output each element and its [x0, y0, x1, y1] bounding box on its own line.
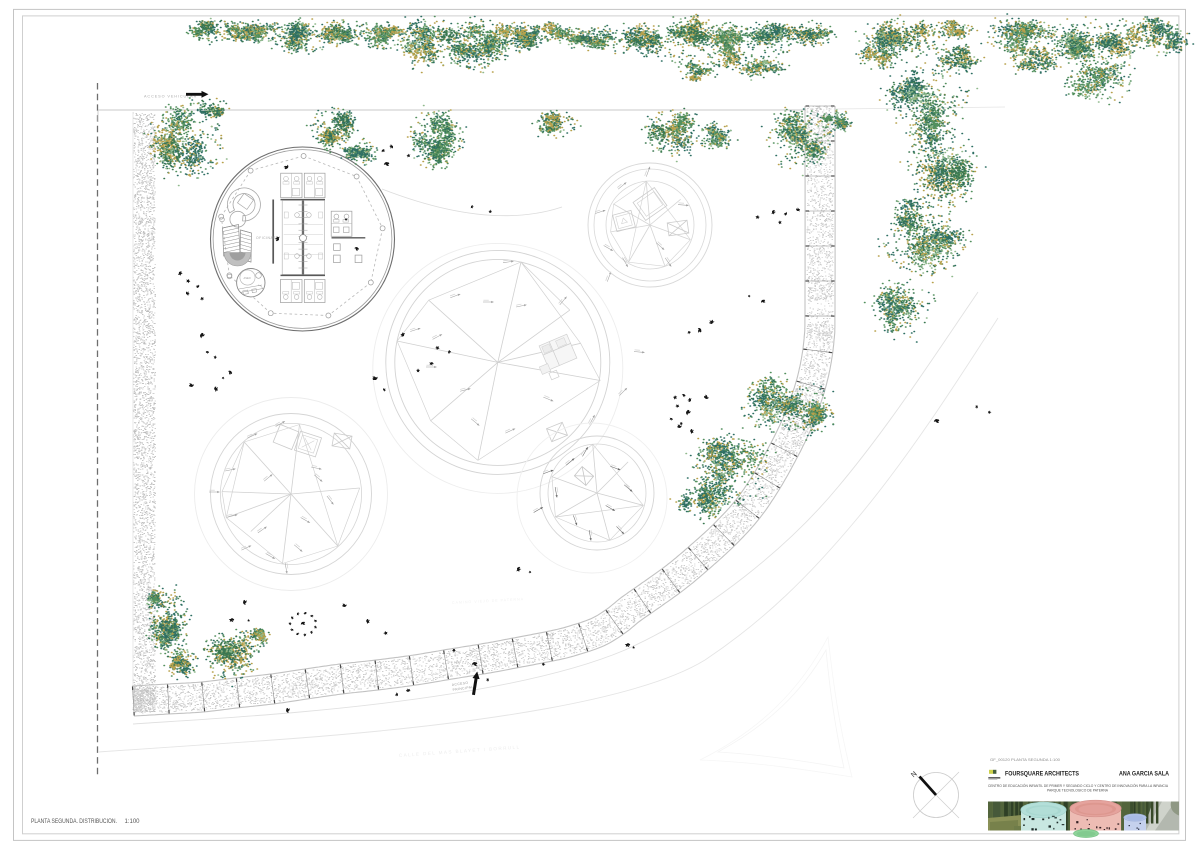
svg-text:CENTRO DE EDUCACIÓN INFANTIL D: CENTRO DE EDUCACIÓN INFANTIL DE PRIMER Y… [988, 783, 1169, 788]
svg-text:OFICINAS: OFICINAS [256, 236, 276, 240]
svg-text:PLANTA SEGUNDA. DISTRIBUCION.: PLANTA SEGUNDA. DISTRIBUCION. [31, 819, 117, 825]
svg-text:FOURSQUARE ARCHITECTS: FOURSQUARE ARCHITECTS [1005, 772, 1079, 778]
svg-text:ASEO: ASEO [244, 276, 251, 280]
svg-text:ANA GARCIA SALA: ANA GARCIA SALA [1119, 772, 1170, 778]
svg-text:PARQUE TECNOLOGICO DE PATERNA: PARQUE TECNOLOGICO DE PATERNA [1047, 789, 1109, 793]
svg-text:GF_00120 PLANTA SEGUNDA 1:1: GF_00120 PLANTA SEGUNDA 1:100 [990, 757, 1061, 762]
svg-text:1:100: 1:100 [125, 819, 141, 825]
